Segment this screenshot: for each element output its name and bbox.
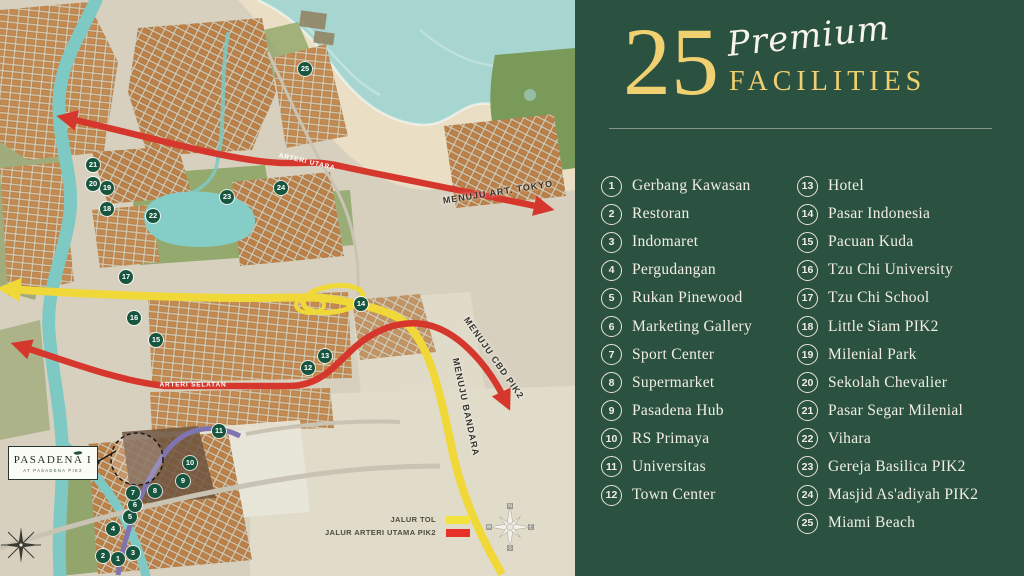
facility-item: 14Pasar Indonesia [797,200,1016,228]
facility-label: Pergudangan [632,261,716,279]
facility-count: 25 [623,20,719,104]
facility-label: RS Primaya [632,430,710,448]
svg-text:N: N [508,504,512,510]
facilities-panel: 25 Premium FACILITIES 1Gerbang Kawasan2R… [575,0,1024,576]
facility-label: Town Center [632,486,716,504]
facility-number-badge: 11 [601,456,622,477]
map-marker-6: 6 [128,498,142,512]
map-marker-5: 5 [123,510,137,524]
legend-label: JALUR ARTERI UTAMA PIK2 [325,528,436,537]
project-title: PASADENA I [14,454,92,466]
facility-item: 6Marketing Gallery [601,312,797,340]
facility-number-badge: 17 [797,288,818,309]
facility-item: 19Milenial Park [797,341,1016,369]
facility-item: 7Sport Center [601,341,797,369]
facility-label: Gerbang Kawasan [632,177,751,195]
facility-label: Rukan Pinewood [632,289,743,307]
map-marker-17: 17 [119,270,133,284]
panel-title-script: Premium [725,8,925,62]
map-marker-25: 25 [298,62,312,76]
legend-swatch [446,516,470,524]
facility-item: 3Indomaret [601,228,797,256]
map-marker-21: 21 [86,158,100,172]
facility-item: 17Tzu Chi School [797,284,1016,312]
facility-item: 15Pacuan Kuda [797,228,1016,256]
map-marker-11: 11 [212,424,226,438]
facility-item: 25Miami Beach [797,509,1016,537]
map-marker-4: 4 [106,522,120,536]
facility-label: Restoran [632,205,690,223]
masterplan-map: MENUJU ART. TOKYO MENUJU CBD PIK2 MENUJU… [0,0,575,576]
facility-label: Pacuan Kuda [828,233,914,251]
facility-label: Masjid As'adiyah PIK2 [828,486,978,504]
facility-number-badge: 9 [601,400,622,421]
project-label-box: PASADENA I AT PASADENA PIK2 [8,446,98,480]
project-subtitle: AT PASADENA PIK2 [23,468,82,473]
facility-number-badge: 15 [797,232,818,253]
map-marker-12: 12 [301,361,315,375]
legend-row: JALUR ARTERI UTAMA PIK2 [318,526,470,539]
panel-divider [609,128,992,129]
facility-number-badge: 5 [601,288,622,309]
facility-number-badge: 20 [797,372,818,393]
facility-item: 18Little Siam PIK2 [797,312,1016,340]
facility-item: 16Tzu Chi University [797,256,1016,284]
facility-item: 12Town Center [601,481,797,509]
facilities-column-left: 1Gerbang Kawasan2Restoran3Indomaret4Perg… [601,172,797,537]
facility-label: Tzu Chi School [828,289,930,307]
map-marker-1: 1 [111,552,125,566]
facility-number-badge: 12 [601,485,622,506]
facility-number-badge: 21 [797,400,818,421]
facility-number-badge: 7 [601,344,622,365]
panel-title-block: Premium FACILITIES [729,20,926,96]
screenshot-stage: MENUJU ART. TOKYO MENUJU CBD PIK2 MENUJU… [0,0,1024,576]
map-marker-13: 13 [318,349,332,363]
panel-title-caps: FACILITIES [729,68,926,96]
facility-label: Sport Center [632,346,714,364]
legend-label: JALUR TOL [390,515,436,524]
facility-item: 1Gerbang Kawasan [601,172,797,200]
map-legend: JALUR TOLJALUR ARTERI UTAMA PIK2 [318,513,470,539]
facility-label: Little Siam PIK2 [828,318,939,336]
map-marker-19: 19 [100,181,114,195]
map-marker-16: 16 [127,311,141,325]
map-marker-8: 8 [148,484,162,498]
map-marker-20: 20 [86,177,100,191]
facility-number-badge: 14 [797,204,818,225]
facility-label: Hotel [828,177,864,195]
facility-item: 10RS Primaya [601,425,797,453]
facility-number-badge: 24 [797,485,818,506]
map-marker-23: 23 [220,190,234,204]
facility-item: 21Pasar Segar Milenial [797,397,1016,425]
facility-number-badge: 8 [601,372,622,393]
legend-row: JALUR TOL [318,513,470,526]
facility-label: Indomaret [632,233,698,251]
svg-text:W: W [487,525,492,531]
facility-number-badge: 19 [797,344,818,365]
facility-label: Marketing Gallery [632,318,752,336]
facility-label: Miami Beach [828,514,915,532]
map-marker-24: 24 [274,181,288,195]
map-marker-15: 15 [149,333,163,347]
facility-label: Pasadena Hub [632,402,724,420]
facility-label: Tzu Chi University [828,261,953,279]
facility-number-badge: 2 [601,204,622,225]
facility-item: 24Masjid As'adiyah PIK2 [797,481,1016,509]
facility-number-badge: 25 [797,513,818,534]
facility-number-badge: 10 [601,428,622,449]
panel-header: 25 Premium FACILITIES [623,20,926,104]
map-marker-3: 3 [126,546,140,560]
facility-item: 11Universitas [601,453,797,481]
map-marker-22: 22 [146,209,160,223]
map-marker-7: 7 [126,486,140,500]
facility-label: Pasar Indonesia [828,205,930,223]
facility-label: Supermarket [632,374,715,392]
map-illustration [0,0,575,576]
facility-label: Vihara [828,430,871,448]
facility-number-badge: 22 [797,428,818,449]
facility-number-badge: 23 [797,456,818,477]
compass-rose-icon: N E S W [486,503,534,551]
facility-item: 5Rukan Pinewood [601,284,797,312]
map-marker-10: 10 [183,456,197,470]
facility-label: Sekolah Chevalier [828,374,947,392]
facility-item: 2Restoran [601,200,797,228]
facility-item: 13Hotel [797,172,1016,200]
facility-number-badge: 3 [601,232,622,253]
facility-label: Gereja Basilica PIK2 [828,458,966,476]
facility-item: 22Vihara [797,425,1016,453]
map-marker-14: 14 [354,297,368,311]
facilities-list: 1Gerbang Kawasan2Restoran3Indomaret4Perg… [601,172,1016,537]
map-marker-9: 9 [176,474,190,488]
facility-number-badge: 16 [797,260,818,281]
facility-number-badge: 18 [797,316,818,337]
legend-swatch [446,529,470,537]
road-label-arteri-selatan: ARTERI SELATAN [160,382,227,389]
map-marker-18: 18 [100,202,114,216]
facility-label: Milenial Park [828,346,917,364]
facility-number-badge: 6 [601,316,622,337]
facility-label: Universitas [632,458,706,476]
map-marker-2: 2 [96,549,110,563]
facility-number-badge: 1 [601,176,622,197]
facility-number-badge: 13 [797,176,818,197]
facility-item: 4Pergudangan [601,256,797,284]
lake [144,191,255,247]
facility-label: Pasar Segar Milenial [828,402,963,420]
facility-item: 8Supermarket [601,369,797,397]
facility-number-badge: 4 [601,260,622,281]
facility-item: 23Gereja Basilica PIK2 [797,453,1016,481]
facility-item: 20Sekolah Chevalier [797,369,1016,397]
facility-item: 9Pasadena Hub [601,397,797,425]
compass-dark-icon [0,524,42,566]
facilities-column-right: 13Hotel14Pasar Indonesia15Pacuan Kuda16T… [797,172,1016,537]
